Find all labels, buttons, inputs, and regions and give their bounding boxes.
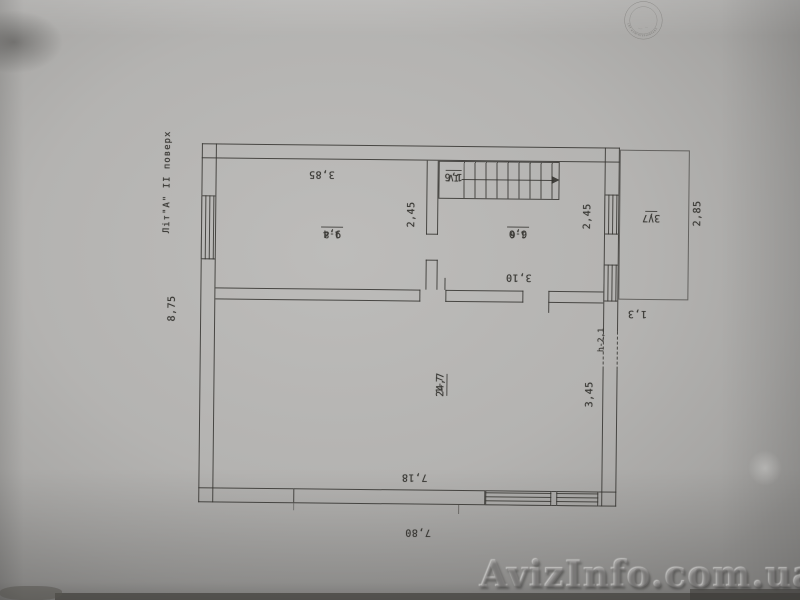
- stamp-ring-text: СБТ КОМІНТЕРНІВСЬКЕ: [627, 23, 659, 38]
- wall-interior-v-seg: [425, 260, 437, 290]
- wall-right-seg: [604, 235, 619, 265]
- wall-left-seg: [201, 143, 217, 195]
- photo-bottom-edge: [55, 593, 800, 600]
- dimension-balcony-offset: 1,3: [622, 308, 652, 320]
- window-bottom-wide: [293, 488, 485, 505]
- room-area: 24,7: [436, 373, 448, 397]
- window-bottom-1: [485, 490, 551, 506]
- room-label-1-6: 1-6 6,0: [503, 217, 533, 247]
- window-right-1: [604, 195, 619, 235]
- wall-interior-h-seg: [215, 287, 420, 301]
- dimension-room17-width: 7,18: [394, 471, 434, 483]
- balcony-label-V: V 3,7: [638, 202, 664, 232]
- door-height-note: h-2,1: [595, 324, 606, 356]
- dimension-building-depth: 8,75: [165, 286, 178, 330]
- wall-end-cap: [548, 291, 549, 303]
- dimension-room18-depth: 2,45: [405, 196, 417, 232]
- dimension-tick: [293, 503, 294, 510]
- wall-end-cap: [426, 234, 438, 235]
- window-right-2: [603, 265, 618, 302]
- round-stamp: СБТ КОМІНТЕРНІВСЬКЕ: [618, 0, 800, 70]
- dimension-room17-depth: 3,45: [583, 376, 595, 412]
- dimension-room18-width: 3,85: [302, 168, 342, 180]
- stamp-outer-ring: [625, 2, 663, 40]
- room-area: 1,6: [445, 170, 463, 182]
- dimension-building-width: 7,80: [398, 526, 438, 538]
- window-left: [201, 195, 217, 259]
- paper-smudge: [748, 450, 782, 486]
- dimension-room16-width: 3,10: [498, 271, 538, 283]
- room-area: 6,0: [509, 227, 527, 239]
- wall-interior-h-seg: [548, 291, 603, 304]
- photo-bottom-edge-right: [690, 589, 800, 600]
- wall-interior-v-seg: [426, 161, 439, 235]
- wall-right-seg: [601, 369, 617, 506]
- dimension-tick: [458, 505, 459, 514]
- stamp-inner-ring: [630, 7, 657, 34]
- stamp-inner-marks: [638, 27, 648, 29]
- wall-top: [202, 143, 620, 162]
- room-label-1-8: 1-8 9,4: [317, 217, 347, 247]
- photo-bottom-left-shadow: [0, 586, 62, 600]
- wall-right-seg: [604, 148, 619, 195]
- wall-interior-h-seg: [445, 290, 523, 303]
- floor-title: Літ"А" II поверх: [160, 132, 175, 232]
- wall-left-seg: [198, 259, 216, 502]
- window-bottom-2: [556, 491, 598, 506]
- photographed-floor-plan: Літ"А" II поверх 8,75 3,85 1-8 9,4 2,45 …: [0, 0, 800, 600]
- room-area: 9,4: [323, 227, 341, 239]
- wall-end-cap: [522, 291, 523, 303]
- room-label-1-7: 1-7 24,7: [426, 368, 456, 402]
- stair-arrow-icon: [552, 176, 560, 184]
- dimension-balcony-depth: 2,85: [691, 195, 703, 231]
- door-leaf-tick: [548, 303, 549, 313]
- door-leaf-tick: [444, 278, 445, 290]
- floor-plan: Літ"А" II поверх 8,75 3,85 1-8 9,4 2,45 …: [158, 127, 762, 563]
- dimension-room16-depth: 2,45: [581, 198, 593, 234]
- wall-end-cap: [426, 260, 438, 261]
- wall-end-cap: [445, 290, 446, 302]
- room-area: 3,7: [642, 211, 660, 223]
- wall-end-cap: [419, 290, 420, 302]
- svg-text:СБТ КОМІНТЕРНІВСЬКЕ: СБТ КОМІНТЕРНІВСЬКЕ: [627, 23, 659, 38]
- stair-label-IV: IV 1,6: [442, 161, 464, 191]
